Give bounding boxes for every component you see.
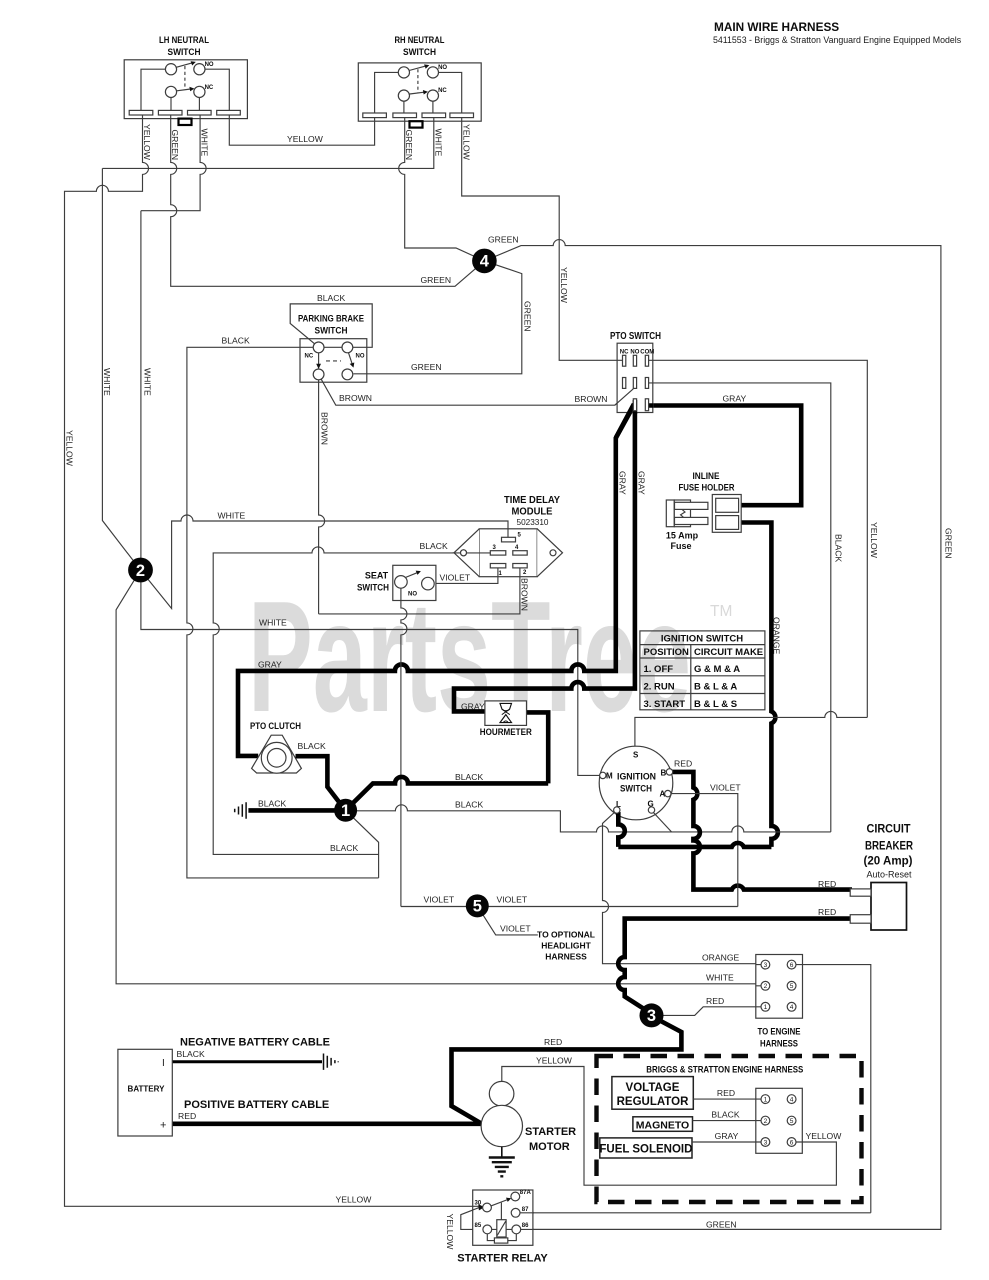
svg-text:HARNESS: HARNESS bbox=[545, 952, 587, 962]
svg-text:BATTERY: BATTERY bbox=[128, 1085, 166, 1094]
svg-text:POSITIVE BATTERY CABLE: POSITIVE BATTERY CABLE bbox=[184, 1099, 329, 1111]
svg-text:NO: NO bbox=[356, 354, 365, 360]
svg-text:1: 1 bbox=[764, 1004, 768, 1011]
svg-text:NC: NC bbox=[438, 88, 447, 94]
svg-text:VIOLET: VIOLET bbox=[497, 895, 528, 905]
svg-text:BLACK: BLACK bbox=[298, 741, 326, 751]
svg-text:SWITCH: SWITCH bbox=[403, 47, 436, 58]
svg-text:3: 3 bbox=[764, 1139, 768, 1146]
svg-text:YELLOW: YELLOW bbox=[806, 1131, 843, 1141]
svg-text:PartsTree: PartsTree bbox=[248, 569, 691, 745]
svg-text:YELLOW: YELLOW bbox=[445, 1214, 455, 1251]
svg-text:S: S bbox=[633, 751, 639, 760]
svg-text:1. OFF: 1. OFF bbox=[644, 664, 674, 675]
svg-text:85: 85 bbox=[475, 1223, 482, 1229]
svg-text:BLACK: BLACK bbox=[420, 541, 448, 551]
svg-text:NC: NC bbox=[305, 354, 314, 360]
svg-text:6: 6 bbox=[790, 1139, 794, 1146]
svg-text:IGNITION: IGNITION bbox=[617, 772, 656, 782]
svg-text:RED: RED bbox=[818, 879, 836, 889]
svg-text:NEGATIVE BATTERY CABLE: NEGATIVE BATTERY CABLE bbox=[180, 1037, 330, 1049]
svg-text:1: 1 bbox=[341, 802, 350, 820]
svg-text:IGNITION SWITCH: IGNITION SWITCH bbox=[661, 634, 743, 645]
svg-text:2: 2 bbox=[764, 1118, 768, 1125]
svg-text:TM: TM bbox=[710, 603, 732, 620]
svg-text:YELLOW: YELLOW bbox=[142, 124, 152, 161]
svg-text:YELLOW: YELLOW bbox=[461, 124, 471, 161]
svg-text:YELLOW: YELLOW bbox=[65, 430, 75, 467]
svg-text:RED: RED bbox=[717, 1088, 735, 1098]
svg-text:GREEN: GREEN bbox=[523, 301, 533, 332]
svg-text:15 Amp: 15 Amp bbox=[666, 531, 699, 541]
svg-text:WHITE: WHITE bbox=[706, 972, 734, 982]
svg-text:1: 1 bbox=[764, 1097, 768, 1104]
svg-text:BLACK: BLACK bbox=[834, 534, 844, 562]
svg-text:INLINE: INLINE bbox=[693, 471, 720, 482]
svg-text:GRAY: GRAY bbox=[618, 471, 628, 495]
svg-text:TO ENGINE: TO ENGINE bbox=[758, 1027, 801, 1037]
svg-text:STARTER: STARTER bbox=[525, 1126, 576, 1138]
svg-text:4: 4 bbox=[790, 1004, 794, 1011]
svg-text:LH NEUTRAL: LH NEUTRAL bbox=[159, 35, 209, 46]
svg-text:BLACK: BLACK bbox=[330, 843, 358, 853]
svg-text:5411553 - Briggs & Stratton Va: 5411553 - Briggs & Stratton Vanguard Eng… bbox=[713, 35, 962, 45]
svg-text:SWITCH: SWITCH bbox=[620, 784, 652, 794]
svg-text:MAIN WIRE HARNESS: MAIN WIRE HARNESS bbox=[714, 20, 839, 34]
svg-text:SWITCH: SWITCH bbox=[315, 326, 348, 337]
svg-text:YELLOW: YELLOW bbox=[869, 522, 879, 559]
svg-text:GREEN: GREEN bbox=[706, 1220, 737, 1230]
svg-text:VOLTAGE: VOLTAGE bbox=[626, 1082, 680, 1094]
svg-text:2: 2 bbox=[764, 983, 768, 990]
svg-text:BROWN: BROWN bbox=[339, 393, 372, 403]
svg-text:5: 5 bbox=[790, 983, 794, 990]
svg-text:BLACK: BLACK bbox=[258, 799, 286, 809]
svg-text:NO: NO bbox=[408, 592, 417, 598]
svg-text:BREAKER: BREAKER bbox=[865, 841, 914, 853]
svg-text:5: 5 bbox=[790, 1118, 794, 1125]
svg-text:WHITE: WHITE bbox=[102, 368, 112, 396]
svg-text:MAGNETO: MAGNETO bbox=[636, 1119, 689, 1131]
svg-text:WHITE: WHITE bbox=[218, 511, 246, 521]
svg-text:BRIGGS & STRATTON ENGINE HARNE: BRIGGS & STRATTON ENGINE HARNESS bbox=[646, 1065, 803, 1075]
svg-text:RED: RED bbox=[178, 1111, 196, 1121]
svg-text:GREEN: GREEN bbox=[488, 235, 519, 245]
svg-text:3: 3 bbox=[647, 1007, 656, 1025]
svg-text:GREEN: GREEN bbox=[421, 275, 452, 285]
svg-text:5023310: 5023310 bbox=[517, 517, 549, 527]
svg-text:GREEN: GREEN bbox=[170, 130, 180, 161]
svg-text:SWITCH: SWITCH bbox=[357, 583, 389, 593]
svg-text:CIRCUIT MAKE: CIRCUIT MAKE bbox=[694, 647, 763, 658]
svg-text:YELLOW: YELLOW bbox=[559, 267, 569, 304]
svg-text:FUEL SOLENOID: FUEL SOLENOID bbox=[599, 1144, 692, 1156]
svg-text:BLACK: BLACK bbox=[222, 336, 250, 346]
svg-text:RED: RED bbox=[544, 1037, 562, 1047]
svg-text:REGULATOR: REGULATOR bbox=[617, 1096, 689, 1108]
svg-text:I: I bbox=[162, 1058, 165, 1069]
svg-text:VIOLET: VIOLET bbox=[500, 924, 531, 934]
svg-text:(20 Amp): (20 Amp) bbox=[864, 856, 913, 868]
svg-text:86: 86 bbox=[522, 1223, 529, 1229]
svg-text:NO: NO bbox=[438, 65, 447, 71]
svg-text:HOURMETER: HOURMETER bbox=[480, 727, 532, 738]
svg-text:VIOLET: VIOLET bbox=[710, 783, 741, 793]
svg-text:87A: 87A bbox=[520, 1190, 532, 1196]
svg-text:GREEN: GREEN bbox=[944, 528, 954, 559]
svg-text:RH NEUTRAL: RH NEUTRAL bbox=[395, 35, 445, 46]
svg-text:PARKING BRAKE: PARKING BRAKE bbox=[298, 314, 364, 325]
svg-text:3: 3 bbox=[764, 962, 768, 969]
svg-text:PTO CLUTCH: PTO CLUTCH bbox=[250, 721, 301, 732]
svg-text:GRAY: GRAY bbox=[258, 660, 282, 670]
svg-text:ORANGE: ORANGE bbox=[702, 953, 740, 963]
svg-text:6: 6 bbox=[790, 962, 794, 969]
svg-text:BLACK: BLACK bbox=[177, 1049, 205, 1059]
svg-text:RED: RED bbox=[706, 996, 724, 1006]
svg-text:BLACK: BLACK bbox=[317, 293, 345, 303]
svg-text:GRAY: GRAY bbox=[715, 1131, 739, 1141]
svg-text:G & M & A: G & M & A bbox=[694, 664, 740, 675]
svg-text:B & L & A: B & L & A bbox=[694, 681, 737, 692]
svg-text:YELLOW: YELLOW bbox=[287, 134, 324, 144]
svg-text:NO: NO bbox=[205, 62, 214, 68]
svg-text:M: M bbox=[606, 772, 613, 781]
svg-text:4: 4 bbox=[480, 253, 490, 271]
svg-text:HEADLIGHT: HEADLIGHT bbox=[541, 941, 591, 951]
svg-text:BLACK: BLACK bbox=[455, 800, 483, 810]
svg-text:B & L & S: B & L & S bbox=[694, 699, 737, 710]
svg-text:30: 30 bbox=[475, 1201, 482, 1207]
svg-text:PTO SWITCH: PTO SWITCH bbox=[610, 330, 661, 342]
svg-text:WHITE: WHITE bbox=[200, 129, 210, 157]
svg-text:WHITE: WHITE bbox=[143, 368, 153, 396]
svg-text:BROWN: BROWN bbox=[575, 394, 608, 404]
svg-text:POSITION: POSITION bbox=[644, 647, 690, 658]
svg-text:VIOLET: VIOLET bbox=[424, 895, 455, 905]
svg-text:TO OPTIONAL: TO OPTIONAL bbox=[537, 930, 595, 940]
svg-text:ORANGE: ORANGE bbox=[772, 617, 782, 655]
svg-text:B: B bbox=[661, 768, 667, 777]
svg-text:HARNESS: HARNESS bbox=[760, 1039, 798, 1049]
svg-text:5: 5 bbox=[473, 898, 482, 916]
svg-text:TIME DELAY: TIME DELAY bbox=[504, 494, 560, 506]
svg-text:BROWN: BROWN bbox=[520, 578, 530, 611]
svg-text:2: 2 bbox=[136, 562, 145, 580]
svg-text:Fuse: Fuse bbox=[670, 541, 691, 551]
svg-text:YELLOW: YELLOW bbox=[536, 1056, 573, 1066]
svg-text:CIRCUIT: CIRCUIT bbox=[867, 824, 911, 836]
svg-text:2. RUN: 2. RUN bbox=[644, 681, 675, 692]
svg-text:BLACK: BLACK bbox=[711, 1110, 739, 1120]
svg-text:RED: RED bbox=[818, 907, 836, 917]
svg-text:BLACK: BLACK bbox=[455, 772, 483, 782]
svg-text:MOTOR: MOTOR bbox=[529, 1141, 570, 1153]
svg-text:87: 87 bbox=[522, 1207, 529, 1213]
svg-text:FUSE HOLDER: FUSE HOLDER bbox=[679, 483, 735, 494]
svg-text:SEAT: SEAT bbox=[365, 571, 389, 581]
svg-text:4: 4 bbox=[790, 1097, 794, 1104]
svg-text:WHITE: WHITE bbox=[259, 617, 287, 627]
svg-text:GRAY: GRAY bbox=[723, 394, 747, 404]
svg-text:GREEN: GREEN bbox=[404, 130, 414, 161]
svg-text:WHITE: WHITE bbox=[433, 129, 443, 157]
svg-text:3. START: 3. START bbox=[644, 699, 686, 710]
svg-text:MODULE: MODULE bbox=[512, 506, 553, 518]
svg-text:+: + bbox=[160, 1120, 166, 1132]
svg-text:Auto-Reset: Auto-Reset bbox=[866, 870, 912, 880]
svg-text:GREEN: GREEN bbox=[411, 362, 442, 372]
svg-text:GRAY: GRAY bbox=[461, 701, 485, 711]
svg-text:GRAY: GRAY bbox=[637, 471, 647, 495]
svg-text:BROWN: BROWN bbox=[320, 412, 330, 445]
svg-text:VIOLET: VIOLET bbox=[440, 572, 471, 582]
svg-text:STARTER RELAY: STARTER RELAY bbox=[457, 1253, 548, 1265]
svg-text:YELLOW: YELLOW bbox=[336, 1194, 373, 1204]
svg-text:RED: RED bbox=[674, 759, 692, 769]
svg-text:NC: NC bbox=[205, 85, 214, 91]
svg-text:SWITCH: SWITCH bbox=[168, 47, 201, 58]
